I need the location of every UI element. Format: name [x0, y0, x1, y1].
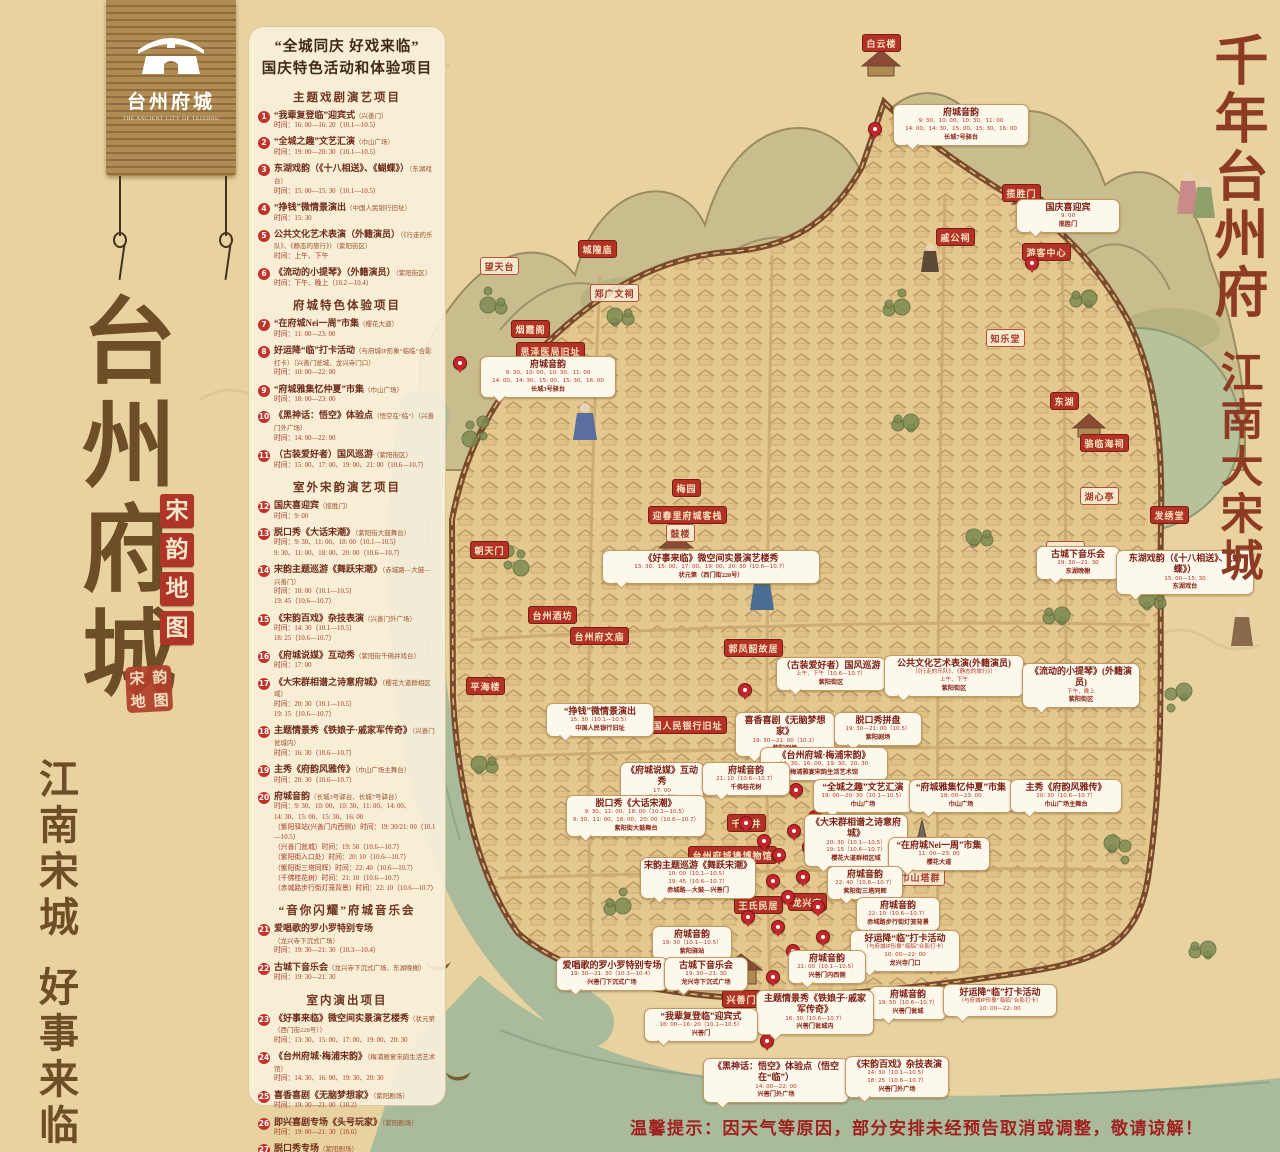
- event-details: 东湖戏韵（《十八相送》、《蝴蝶》）（东湖戏台）时间：15: 00—15: 30（…: [274, 163, 436, 197]
- event-time: 时间：13: 30、15: 00、17: 00、19: 00、20: 30: [274, 1036, 436, 1046]
- event-number-badge: 17: [258, 678, 270, 690]
- event-time: 时间：20: 30（10.1—10.5）: [274, 700, 436, 710]
- red-seal-stamp: 宋韵地图: [125, 665, 173, 713]
- panel-subtitle: 国庆特色活动和体验项目: [258, 59, 436, 81]
- tree-icon: [480, 297, 496, 313]
- event-details: “全城之趣”文艺汇演（巾山广场）时间：19: 00—20: 30（10.1—10…: [274, 136, 436, 158]
- event-location: （紫阳剧场）: [373, 1093, 409, 1100]
- event-time: 时间：18: 00—23: 00: [274, 395, 436, 405]
- event-details: 爱唱歌的罗小罗特别专场（龙兴寺下沉式广场）时间：19: 30—21: 30（10…: [274, 923, 436, 957]
- tree-icon: [619, 888, 627, 896]
- event-location: （兴善门瓮城内）: [274, 728, 435, 747]
- subtitle-haoshi-lailin: 好事来临: [26, 966, 84, 1150]
- event-list-item: 23《好事来临》微空间实景演艺楼秀（状元第（西门街228号））时间：13: 30…: [258, 1013, 436, 1047]
- tree-icon: [1119, 840, 1131, 852]
- event-list-item: 10《黑神话：悟空》体验点（悟空在“临”）（兴善门外广场）时间：14: 00—2…: [258, 410, 436, 444]
- event-location: （紫阳剧场）: [382, 1120, 418, 1127]
- section-title: 主题戏剧演艺项目: [258, 89, 436, 105]
- event-location: （巾山广场主舞台）: [355, 767, 410, 774]
- event-title: 国庆喜迎宾（揽胜门）: [274, 500, 436, 512]
- event-number-badge: 13: [258, 528, 270, 540]
- event-time: 时间：15: 00—15: 30（10.1—10.5）: [274, 187, 436, 197]
- event-number-badge: 23: [258, 1014, 270, 1026]
- event-number-badge: 2: [258, 137, 270, 149]
- event-details: 即兴喜剧专场《头号玩家》（紫阳剧场）时间：19: 00—21: 30（10.6）: [274, 1117, 436, 1139]
- event-location: （状元第（西门街228号））: [274, 1016, 435, 1035]
- event-location: （紫阳街区）: [396, 270, 432, 277]
- stamp-character: 地: [130, 690, 146, 712]
- event-details: “挣钱”微情景演出（中国人民银行旧址）时间：15: 30: [274, 202, 436, 224]
- event-list-item: 12国庆喜迎宾（揽胜门）时间：9: 00: [258, 500, 436, 522]
- event-list-item: 4“挣钱”微情景演出（中国人民银行旧址）时间：15: 30: [258, 202, 436, 224]
- event-number-badge: 4: [258, 203, 270, 215]
- tree-icon: [477, 416, 489, 428]
- event-time: 时间：19: 00—20: 30（10.1—10.5）: [274, 148, 436, 158]
- event-title: 爱唱歌的罗小罗特别专场（龙兴寺下沉式广场）: [274, 923, 436, 946]
- tree-icon: [471, 756, 487, 772]
- event-list-item: 8好运降“临”打卡活动（与府城IP形象“临临”合影打卡）（兴善门瓮城、龙兴寺门口…: [258, 345, 436, 379]
- event-details: 好运降“临”打卡活动（与府城IP形象“临临”合影打卡）（兴善门瓮城、龙兴寺门口）…: [274, 345, 436, 379]
- event-title: “全城之趣”文艺汇演（巾山广场）: [274, 136, 436, 148]
- events-panel: “全城同庆 好戏来临” 国庆特色活动和体验项目 主题戏剧演艺项目1“我辈复登临”…: [248, 26, 446, 1106]
- event-time: 时间：16: 30（10.6—10.7）: [274, 749, 436, 759]
- event-number-badge: 15: [258, 614, 270, 626]
- event-location: （兴善门）: [355, 113, 388, 120]
- event-time: 时间：10: 00—22: 00: [274, 368, 436, 378]
- tree-icon: [615, 898, 631, 914]
- event-list-item: 14宋韵主题巡游《舞跃宋潮》（赤城路—大鼓—兴善门）时间：10: 00（10.1…: [258, 564, 436, 608]
- tree-icon: [504, 561, 512, 569]
- event-details: 《好事来临》微空间实景演艺楼秀（状元第（西门街228号））时间：13: 30、1…: [274, 1013, 436, 1047]
- tree-icon: [1045, 608, 1053, 616]
- seal-character: 地: [160, 572, 194, 606]
- event-location: （龙兴寺下沉式广场、东湖晚榭）: [328, 965, 426, 972]
- event-location: （龙兴寺下沉式广场）: [274, 938, 339, 945]
- tree-icon: [903, 414, 919, 430]
- stamp-character: 宋: [129, 667, 145, 689]
- event-time: 19: 15（10.6—10.7）: [274, 710, 436, 720]
- event-details: 公共文化艺术表演（外籍演员）（《行走的乐队》、《静态的旅行》）（紫阳街区）时间：…: [274, 229, 436, 263]
- event-time: 时间：10: 00（10.1—10.5）: [274, 587, 436, 597]
- event-location: （樱花大道）: [359, 321, 398, 328]
- event-time: （紫阳街入口处）时间：20: 10（10.6—10.7）: [274, 853, 436, 863]
- event-time: （紫阳街三塔同辉）时间：22: 40（10.6—10.7）: [274, 864, 436, 874]
- event-list-item: 9“府城雅集忆仲夏”市集（巾山广场）时间：18: 00—23: 00: [258, 384, 436, 406]
- event-list-item: 20府城音韵（长城3号驿台、长城7号驿台）时间：9: 30、10: 00、10:…: [258, 791, 436, 894]
- tree-icon: [1081, 290, 1097, 306]
- event-location: （兴善门外广场）: [364, 616, 416, 623]
- tree-icon: [1167, 704, 1175, 712]
- event-location: （长城3号驿台、长城7号驿台）: [310, 794, 401, 801]
- event-location: （紫阳街区）: [373, 452, 412, 459]
- tree-icon: [983, 530, 991, 538]
- tree-icon: [497, 298, 505, 306]
- event-title: 宋韵主题巡游《舞跃宋潮》（赤城路—大鼓—兴善门）: [274, 564, 436, 587]
- event-title: “挣钱”微情景演出（中国人民银行旧址）: [274, 202, 436, 214]
- stamp-character: 图: [153, 689, 169, 711]
- event-list-item: 3东湖戏韵（《十八相送》、《蝴蝶》）（东湖戏台）时间：15: 00—15: 30…: [258, 163, 436, 197]
- event-number-badge: 3: [258, 164, 270, 176]
- event-number-badge: 16: [258, 651, 270, 663]
- event-time: 时间：16: 00—16: 20（10.1—10.5）: [274, 121, 436, 131]
- city-logo-banner: 台州府城 THE ANCIENT CITY OF TAIZHOU: [106, 0, 236, 176]
- right-title-qiannian-taizhoufu: 千年台州府: [1197, 32, 1276, 322]
- event-time: 时间：19: 30—21: 30（10.3—10.4）: [274, 946, 436, 956]
- event-time: （兴善门瓮城）时间：19: 50（10.6—10.7）: [274, 843, 436, 853]
- event-list-item: 25喜香喜剧《无脑梦想家》（紫阳剧场）时间：19: 30—21: 00（10.2…: [258, 1090, 436, 1112]
- event-time: 时间：9: 00: [274, 512, 436, 522]
- event-number-badge: 26: [258, 1118, 270, 1130]
- event-location: （中国人民银行旧址）: [346, 205, 411, 212]
- event-list-item: 15《宋韵百戏》杂技表演（兴善门外广场）时间：14: 30（10.1—10.5）…: [258, 613, 436, 645]
- event-location: （揽胜门）: [319, 503, 352, 510]
- event-list-item: 11（古装爱好者）国风巡游（紫阳街区）时间：15: 00、17: 00、19: …: [258, 449, 436, 471]
- event-location: （东湖戏台）: [274, 166, 432, 185]
- tree-icon: [1200, 941, 1216, 957]
- tree-icon: [513, 560, 529, 576]
- tree-icon: [1156, 593, 1164, 601]
- tree-icon: [1139, 592, 1155, 608]
- event-list-item: 2“全城之趣”文艺汇演（巾山广场）时间：19: 00—20: 30（10.1—1…: [258, 136, 436, 158]
- event-title: 喜香喜剧《无脑梦想家》（紫阳剧场）: [274, 1090, 436, 1102]
- event-number-badge: 5: [258, 230, 270, 242]
- tree-icon: [607, 308, 623, 324]
- stamp-character: 韵: [152, 666, 168, 688]
- section-title: 室内演出项目: [258, 992, 436, 1008]
- right-title-jiangnan-dasongcheng: 江南大宋城: [1206, 350, 1268, 585]
- event-title: 脱口秀《大话宋潮》（紫阳街大鼓舞台）: [274, 527, 436, 539]
- event-number-badge: 18: [258, 726, 270, 738]
- event-details: 宋韵主题巡游《舞跃宋潮》（赤城路—大鼓—兴善门）时间：10: 00（10.1—1…: [274, 564, 436, 608]
- event-number-badge: 22: [258, 963, 270, 975]
- event-details: 国庆喜迎宾（揽胜门）时间：9: 00: [274, 500, 436, 522]
- event-list-item: 7“在府城Nei一周”市集（樱花大道）时间：11: 00—23: 00: [258, 318, 436, 340]
- event-details: 喜香喜剧《无脑梦想家》（紫阳剧场）时间：19: 30—21: 00（10.2）: [274, 1090, 436, 1112]
- logo-title: 台州府城: [106, 87, 236, 114]
- tree-icon: [966, 529, 982, 545]
- event-number-badge: 9: [258, 385, 270, 397]
- event-list-item: 13脱口秀《大话宋潮》（紫阳街大鼓舞台）时间：9: 30、11: 00、18: …: [258, 527, 436, 559]
- event-time: 时间：下午、晚上（10.2—10.4）: [274, 279, 436, 289]
- tree-icon: [1165, 688, 1177, 700]
- event-title: 主秀《府韵风雅传》（巾山广场主舞台）: [274, 764, 436, 776]
- event-title: （古装爱好者）国风巡游（紫阳街区）: [274, 449, 436, 461]
- event-time: 时间：19: 00—21: 30（10.6）: [274, 1128, 436, 1138]
- section-title: 室外宋韵演艺项目: [258, 479, 436, 495]
- event-time: 时间：14: 00—22: 00: [274, 434, 436, 444]
- tree-icon: [1054, 607, 1070, 623]
- tree-icon: [488, 757, 496, 765]
- event-title: 《宋韵百戏》杂技表演（兴善门外广场）: [274, 613, 436, 625]
- event-time: 18: 25（10.6—10.7）: [274, 634, 436, 644]
- event-details: “府城雅集忆仲夏”市集（巾山广场）时间：18: 00—23: 00: [274, 384, 436, 406]
- event-number-badge: 19: [258, 765, 270, 777]
- event-title: 主题情景秀《铁娘子·戚家军传奇》（兴善门瓮城内）: [274, 725, 436, 748]
- event-location: （梅浦雅宴宋韵生活艺术馆）: [274, 1054, 435, 1073]
- seal-character: 宋: [160, 494, 194, 528]
- tree-icon: [894, 299, 910, 315]
- event-time: 时间：11: 00—23: 00: [274, 330, 436, 340]
- event-number-badge: 1: [258, 111, 270, 123]
- event-title: 《黑神话：悟空》体验点（悟空在“临”）（兴善门外广场）: [274, 410, 436, 433]
- event-time: 时间：15: 00、17: 00、19: 00、21: 00（10.6—10.7…: [274, 461, 436, 471]
- event-details: 《黑神话：悟空》体验点（悟空在“临”）（兴善门外广场）时间：14: 00—22:…: [274, 410, 436, 444]
- event-details: 《宋韵百戏》杂技表演（兴善门外广场）时间：14: 30（10.1—10.5）18…: [274, 613, 436, 645]
- tree-icon: [624, 309, 632, 317]
- event-title: 即兴喜剧专场《头号玩家》（紫阳剧场）: [274, 1117, 436, 1129]
- map-poster: 台州府城 THE ANCIENT CITY OF TAIZHOU 台州府城 宋韵…: [0, 0, 1280, 1152]
- event-location: （与府城IP形象“临临”合影打卡）（兴善门瓮城、龙兴寺门口）: [274, 348, 432, 367]
- tree-icon: [502, 545, 514, 557]
- event-list-item: 17《大宋群相谱之诗意府城》（樱花大道群相区域）时间：20: 30（10.1—1…: [258, 677, 436, 721]
- event-details: “我辈复登临”迎宾式（兴善门）时间：16: 00—16: 20（10.1—10.…: [274, 110, 436, 132]
- event-time: 时间：19: 30—21: 00（10.2）: [274, 1101, 436, 1111]
- event-location: （樱花大道群相区域）: [274, 680, 431, 699]
- event-details: 《台州府城·梅浦宋韵》（梅浦雅宴宋韵生活艺术馆）时间：14: 30、16: 00…: [274, 1051, 436, 1085]
- event-time: 时间：15: 30: [274, 214, 436, 224]
- event-title: “我辈复登临”迎宾式（兴善门）: [274, 110, 436, 122]
- tree-icon: [894, 415, 902, 423]
- event-number-badge: 7: [258, 319, 270, 331]
- event-location: （紫阳剧场）: [319, 1146, 358, 1152]
- event-time: 时间：9: 30、10: 00、10: 30、11: 00、14: 00、: [274, 802, 436, 812]
- event-details: 主秀《府韵风雅传》（巾山广场主舞台）时间：20: 30（10.6—10.7）: [274, 764, 436, 786]
- tree-icon: [606, 899, 614, 907]
- tree-icon: [1191, 942, 1199, 950]
- event-time: （千佛桂花树）时间：21: 10（10.6—10.7）: [274, 874, 436, 884]
- event-title: 府城音韵（长城3号驿台、长城7号驿台）: [274, 791, 436, 803]
- event-details: 《流动的小提琴》（外籍演员）（紫阳街区）时间：下午、晚上（10.2—10.4）: [274, 267, 436, 289]
- event-time: 时间：14: 30、16: 00、19: 30、20: 30: [274, 1074, 436, 1084]
- event-number-badge: 20: [258, 792, 270, 804]
- event-title: 古城下音乐会（龙兴寺下沉式广场、东湖晚榭）: [274, 962, 436, 974]
- event-number-badge: 11: [258, 450, 270, 462]
- event-title: “府城雅集忆仲夏”市集（巾山广场）: [274, 384, 436, 396]
- event-title: 《府城说媒》互动秀（紫阳街千佛井戏台）: [274, 650, 436, 662]
- event-title: 《台州府城·梅浦宋韵》（梅浦雅宴宋韵生活艺术馆）: [274, 1051, 436, 1074]
- event-time: 时间：20: 30（10.6—10.7）: [274, 776, 436, 786]
- event-location: （紫阳街千佛井戏台）: [355, 653, 420, 660]
- event-time: 时间：上午、下午: [274, 252, 436, 262]
- event-number-badge: 21: [258, 924, 270, 936]
- event-number-badge: 6: [258, 268, 270, 280]
- weather-disclaimer: 温馨提示：因天气等原因，部分安排未经预告取消或调整，敬请谅解！: [630, 1114, 1260, 1139]
- event-list-item: 27脱口秀专场（紫阳剧场）时间：19: 30—21: 00（10.6、10.7）: [258, 1143, 436, 1152]
- event-location: （紫阳街大鼓舞台）: [355, 530, 410, 537]
- event-details: 古城下音乐会（龙兴寺下沉式广场、东湖晚榭）时间：19: 30—21: 30: [274, 962, 436, 984]
- event-number-badge: 14: [258, 565, 270, 577]
- event-location: （《行走的乐队》、《静态的旅行》）（紫阳街区）: [274, 232, 433, 251]
- event-time: 时间：19: 30—21: 30: [274, 973, 436, 983]
- subtitle-jiangnan-songcheng: 江南宋城: [26, 758, 84, 942]
- event-details: 府城音韵（长城3号驿台、长城7号驿台）时间：9: 30、10: 00、10: 3…: [274, 791, 436, 894]
- event-location: （巾山广场）: [355, 139, 394, 146]
- event-details: 《大宋群相谱之诗意府城》（樱花大道群相区域）时间：20: 30（10.1—10.…: [274, 677, 436, 721]
- event-list-item: 5公共文化艺术表演（外籍演员）（《行走的乐队》、《静态的旅行》）（紫阳街区）时间…: [258, 229, 436, 263]
- event-location: （赤城路—大鼓—兴善门）: [274, 567, 431, 586]
- tree-icon: [1176, 683, 1192, 699]
- event-time: 时间：17: 00: [274, 661, 436, 671]
- event-details: 《府城说媒》互动秀（紫阳街千佛井戏台）时间：17: 00: [274, 650, 436, 672]
- event-number-badge: 8: [258, 346, 270, 358]
- event-title: 《流动的小提琴》（外籍演员）（紫阳街区）: [274, 267, 436, 279]
- banner-cord: [225, 176, 227, 236]
- tree-icon: [1121, 856, 1129, 864]
- event-list-item: 21爱唱歌的罗小罗特别专场（龙兴寺下沉式广场）时间：19: 30—21: 30（…: [258, 923, 436, 957]
- event-list-item: 26即兴喜剧专场《头号玩家》（紫阳剧场）时间：19: 00—21: 30（10.…: [258, 1117, 436, 1139]
- event-title: 《好事来临》微空间实景演艺楼秀（状元第（西门街228号））: [274, 1013, 436, 1036]
- panel-quote: “全城同庆 好戏来临”: [258, 37, 436, 59]
- tree-icon: [484, 287, 492, 295]
- event-time: （赤城路步行街灯笼背景）时间：22: 10（10.6—10.7）: [274, 884, 436, 894]
- event-details: 脱口秀《大话宋潮》（紫阳街大鼓舞台）时间：9: 30、11: 00、18: 00…: [274, 527, 436, 559]
- event-list-item: 1“我辈复登临”迎宾式（兴善门）时间：16: 00—16: 20（10.1—10…: [258, 110, 436, 132]
- event-title: 公共文化艺术表演（外籍演员）（《行走的乐队》、《静态的旅行》）（紫阳街区）: [274, 229, 436, 252]
- event-list-item: 6《流动的小提琴》（外籍演员）（紫阳街区）时间：下午、晚上（10.2—10.4）: [258, 267, 436, 289]
- event-list-item: 18主题情景秀《铁娘子·戚家军传奇》（兴善门瓮城内）时间：16: 30（10.6…: [258, 725, 436, 759]
- section-title: 府城特色体验项目: [258, 297, 436, 313]
- event-number-badge: 25: [258, 1091, 270, 1103]
- banner-cord: [119, 176, 121, 236]
- event-list-item: 24《台州府城·梅浦宋韵》（梅浦雅宴宋韵生活艺术馆）时间：14: 30、16: …: [258, 1051, 436, 1085]
- event-list-item: 22古城下音乐会（龙兴寺下沉式广场、东湖晚榭）时间：19: 30—21: 30: [258, 962, 436, 984]
- city-gate-logo-icon: [126, 16, 216, 78]
- tree-icon: [1104, 835, 1120, 851]
- event-title: 好运降“临”打卡活动（与府城IP形象“临临”合影打卡）（兴善门瓮城、龙兴寺门口）: [274, 345, 436, 368]
- event-time: 9: 30、11: 00、18: 00、20: 00（10.6—10.7）: [274, 549, 436, 559]
- event-title: 东湖戏韵（《十八相送》、《蝴蝶》）（东湖戏台）: [274, 163, 436, 186]
- tree-icon: [479, 432, 487, 440]
- tree-icon: [885, 300, 893, 308]
- tree-icon: [1072, 291, 1080, 299]
- event-details: 主题情景秀《铁娘子·戚家军传奇》（兴善门瓮城内）时间：16: 30（10.6—1…: [274, 725, 436, 759]
- seal-character: 韵: [160, 533, 194, 567]
- event-time: 14: 30、15: 00、15: 30、16: 00: [274, 813, 436, 823]
- event-list-item: 19主秀《府韵风雅传》（巾山广场主舞台）时间：20: 30（10.6—10.7）: [258, 764, 436, 786]
- event-details: 脱口秀专场（紫阳剧场）时间：19: 30—21: 00（10.6、10.7）: [274, 1143, 436, 1152]
- event-title: “在府城Nei一周”市集（樱花大道）: [274, 318, 436, 330]
- event-time: 时间：14: 30（10.1—10.5）: [274, 624, 436, 634]
- tree-icon: [462, 431, 478, 447]
- event-number-badge: 10: [258, 411, 270, 423]
- event-number-badge: 12: [258, 501, 270, 513]
- event-title: 《大宋群相谱之诗意府城》（樱花大道群相区域）: [274, 677, 436, 700]
- events-list: 主题戏剧演艺项目1“我辈复登临”迎宾式（兴善门）时间：16: 00—16: 20…: [258, 89, 436, 1152]
- event-time: （紫阳驿站(兴善门内西侧)）时间：19: 30/21: 00（10.1—10.5…: [274, 823, 436, 843]
- tree-icon: [517, 550, 525, 558]
- event-title: 脱口秀专场（紫阳剧场）: [274, 1143, 436, 1152]
- tree-icon: [898, 289, 906, 297]
- section-title: “音你闪耀”府城音乐会: [258, 902, 436, 918]
- event-location: （悟空在“临”）（兴善门外广场）: [274, 413, 434, 432]
- event-time: 时间：9: 30、11: 00、18: 00（10.1—10.5）: [274, 538, 436, 548]
- tree-icon: [466, 421, 474, 429]
- logo-subtitle-en: THE ANCIENT CITY OF TAIZHOU: [106, 116, 236, 122]
- event-number-badge: 27: [258, 1144, 270, 1152]
- event-details: （古装爱好者）国风巡游（紫阳街区）时间：15: 00、17: 00、19: 00…: [274, 449, 436, 471]
- event-time: 19: 45（10.6—10.7）: [274, 597, 436, 607]
- event-list-item: 16《府城说媒》互动秀（紫阳街千佛井戏台）时间：17: 00: [258, 650, 436, 672]
- event-location: （巾山广场）: [364, 387, 403, 394]
- event-details: “在府城Nei一周”市集（樱花大道）时间：11: 00—23: 00: [274, 318, 436, 340]
- seal-character: 图: [160, 611, 194, 645]
- seal-title-songyun-map: 宋韵地图: [160, 494, 194, 650]
- event-number-badge: 24: [258, 1052, 270, 1064]
